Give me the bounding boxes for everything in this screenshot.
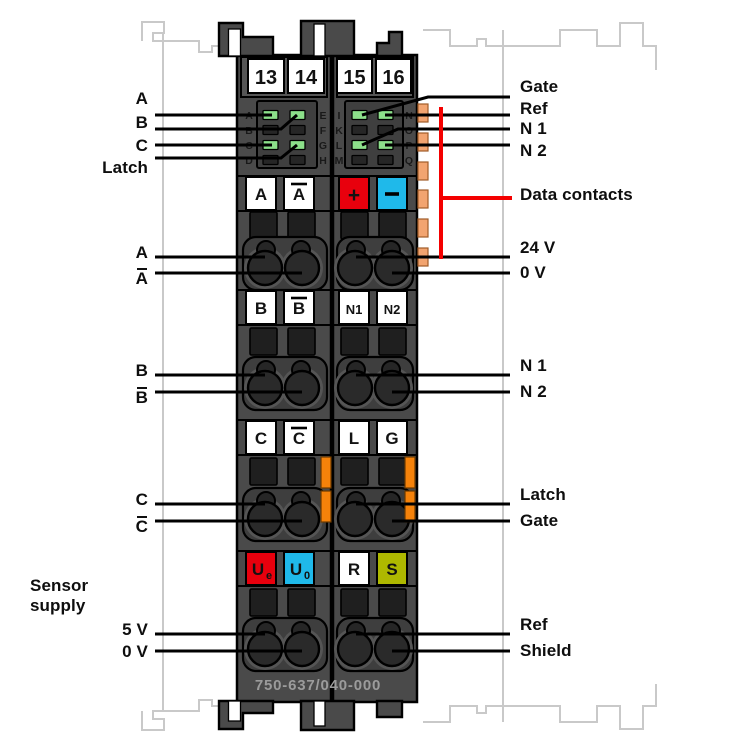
callout-terminal-right: Ref	[520, 615, 548, 635]
callout-terminal-left: B	[136, 361, 148, 381]
sensor-supply-label: Sensor supply	[30, 576, 88, 616]
callout-signal-left: Latch	[102, 158, 148, 178]
wago-module-diagram: 13141516AEBFCGDHINKOLPMQAA+BBN1N2CCLGUeU…	[0, 0, 750, 750]
callout-terminal-right: Shield	[520, 641, 572, 661]
callout-signal-right: N 2	[520, 141, 547, 161]
callout-labels-layer: ABCLatchGateRefN 1N 2AABBCC5 V0 V24 V0 V…	[0, 0, 750, 750]
callout-signal-left: B	[136, 113, 148, 133]
callout-terminal-right: 0 V	[520, 263, 546, 283]
callout-terminal-left: C	[136, 490, 148, 510]
callout-terminal-left: C	[136, 514, 148, 537]
callout-terminal-right: N 1	[520, 356, 547, 376]
callout-signal-right: Ref	[520, 99, 548, 119]
callout-terminal-left: B	[136, 385, 148, 408]
callout-signal-right: N 1	[520, 119, 547, 139]
callout-terminal-left: 5 V	[122, 620, 148, 640]
callout-signal-left: C	[136, 136, 148, 156]
data-contacts-label: Data contacts	[520, 185, 633, 205]
callout-terminal-right: 24 V	[520, 238, 555, 258]
callout-terminal-right: Gate	[520, 511, 558, 531]
callout-signal-right: Gate	[520, 77, 558, 97]
callout-terminal-right: Latch	[520, 485, 566, 505]
callout-signal-left: A	[136, 89, 148, 109]
callout-terminal-left: A	[136, 266, 148, 289]
callout-terminal-left: 0 V	[122, 642, 148, 662]
callout-terminal-left: A	[136, 243, 148, 263]
callout-terminal-right: N 2	[520, 382, 547, 402]
